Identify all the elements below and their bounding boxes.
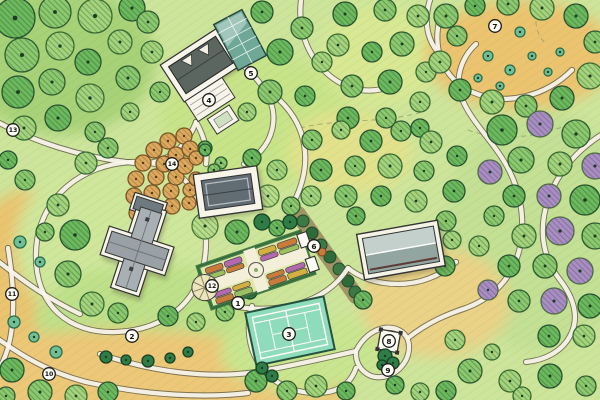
plan-marker-12[interactable]: 12 xyxy=(206,280,219,293)
tree xyxy=(85,122,105,142)
svg-circle-shape xyxy=(195,157,197,159)
orchard-tree xyxy=(146,142,162,158)
tree xyxy=(354,291,372,309)
plan-marker-14[interactable]: 14 xyxy=(166,158,179,171)
svg-circle-shape xyxy=(419,101,421,103)
svg-circle-shape xyxy=(271,375,273,377)
tree xyxy=(541,288,567,314)
svg-circle-shape xyxy=(589,305,592,308)
tree xyxy=(341,75,363,97)
svg-circle-shape xyxy=(345,195,348,198)
tree xyxy=(28,380,52,400)
tree xyxy=(533,254,557,278)
tree xyxy=(75,152,97,174)
tree xyxy=(362,42,382,62)
svg-circle-shape xyxy=(276,227,278,229)
svg-circle-shape xyxy=(19,241,21,243)
svg-circle-shape xyxy=(583,335,586,338)
svg-circle-shape xyxy=(39,261,41,263)
svg-circle-shape xyxy=(159,91,161,93)
tree xyxy=(332,121,350,139)
svg-circle-shape xyxy=(289,221,291,223)
tree xyxy=(46,32,74,60)
svg-circle-shape xyxy=(261,367,263,369)
svg-circle-shape xyxy=(491,351,493,353)
svg-circle-shape xyxy=(187,351,189,353)
plan-marker-label: 3 xyxy=(286,330,291,339)
svg-circle-shape xyxy=(189,189,191,191)
svg-circle-shape xyxy=(246,111,248,113)
svg-circle-shape xyxy=(297,215,309,227)
plan-marker-label: 5 xyxy=(248,69,253,78)
svg-circle-shape xyxy=(304,95,306,97)
tree xyxy=(573,325,595,347)
plan-marker-2[interactable]: 2 xyxy=(126,330,139,343)
tree xyxy=(378,154,402,178)
tree xyxy=(515,27,525,37)
svg-circle-shape xyxy=(394,384,396,386)
svg-circle-shape xyxy=(456,155,458,157)
tree xyxy=(513,387,531,400)
tree xyxy=(0,151,17,169)
svg-circle-shape xyxy=(7,159,9,161)
plan-marker-3[interactable]: 3 xyxy=(283,328,296,341)
tree xyxy=(335,185,357,207)
svg-circle-shape xyxy=(578,269,581,272)
svg-circle-shape xyxy=(552,299,555,302)
svg-circle-shape xyxy=(419,391,421,393)
plan-marker-label: 8 xyxy=(386,337,391,346)
svg-circle-shape xyxy=(518,300,521,303)
svg-circle-shape xyxy=(147,360,149,362)
svg-circle-shape xyxy=(380,195,382,197)
tree xyxy=(0,358,24,382)
tree xyxy=(305,375,327,397)
tree xyxy=(39,0,71,28)
tree xyxy=(14,236,26,248)
tree xyxy=(527,111,553,137)
svg-circle-shape xyxy=(423,170,425,172)
svg-circle-shape xyxy=(310,195,312,197)
tree xyxy=(508,147,534,173)
svg-circle-shape xyxy=(50,80,53,83)
svg-circle-shape xyxy=(575,15,578,18)
shrub xyxy=(183,347,193,357)
tree xyxy=(407,5,429,27)
plan-marker-6[interactable]: 6 xyxy=(308,240,321,253)
tree xyxy=(538,364,562,388)
svg-circle-shape xyxy=(315,385,318,388)
tree xyxy=(187,313,205,331)
svg-circle-shape xyxy=(340,129,342,131)
svg-circle-shape xyxy=(425,71,427,73)
tree xyxy=(478,280,498,300)
tree xyxy=(2,76,34,108)
svg-circle-shape xyxy=(135,178,137,180)
tree xyxy=(258,80,282,104)
svg-circle-shape xyxy=(33,336,35,338)
shrub xyxy=(121,355,131,365)
tree xyxy=(295,86,315,106)
svg-circle-shape xyxy=(354,165,356,167)
tree xyxy=(411,383,429,400)
tree xyxy=(410,92,430,112)
tree xyxy=(47,194,69,216)
svg-circle-shape xyxy=(392,362,394,364)
svg-circle-shape xyxy=(311,139,313,141)
svg-circle-shape xyxy=(487,55,489,57)
tree xyxy=(36,223,54,241)
svg-circle-shape xyxy=(509,380,512,383)
tree xyxy=(15,170,35,190)
svg-circle-shape xyxy=(117,312,119,314)
tree xyxy=(347,207,365,225)
svg-circle-shape xyxy=(11,369,14,372)
tree xyxy=(578,294,600,318)
plan-marker-10[interactable]: 10 xyxy=(43,368,56,381)
tree xyxy=(458,359,482,383)
tree xyxy=(443,231,461,249)
tree xyxy=(158,306,178,326)
shrub xyxy=(256,362,268,374)
svg-circle-shape xyxy=(491,101,494,104)
svg-circle-shape xyxy=(525,105,528,108)
tree xyxy=(225,220,249,244)
svg-circle-shape xyxy=(55,351,57,353)
svg-circle-shape xyxy=(220,162,222,164)
svg-circle-shape xyxy=(175,176,177,178)
svg-rect-shape xyxy=(395,350,400,355)
svg-circle-shape xyxy=(147,21,150,24)
svg-circle-shape xyxy=(583,198,587,202)
tree xyxy=(484,344,500,360)
svg-circle-shape xyxy=(105,356,107,358)
plan-marker-label: 2 xyxy=(129,332,134,341)
svg-circle-shape xyxy=(499,85,501,87)
tree xyxy=(378,70,402,94)
plan-marker-label: 13 xyxy=(9,127,18,134)
svg-circle-shape xyxy=(362,299,364,301)
svg-circle-shape xyxy=(371,51,373,53)
svg-circle-shape xyxy=(389,165,392,168)
tree xyxy=(267,160,287,180)
svg-rect-shape xyxy=(398,331,403,336)
tree xyxy=(436,381,456,400)
tree xyxy=(116,66,140,90)
tree xyxy=(386,376,404,394)
svg-circle-shape xyxy=(574,132,577,135)
svg-circle-shape xyxy=(487,289,489,291)
svg-circle-shape xyxy=(125,359,127,361)
svg-circle-shape xyxy=(320,169,323,172)
tree xyxy=(75,49,101,75)
svg-circle-shape xyxy=(13,16,18,21)
svg-circle-shape xyxy=(73,233,77,237)
tree xyxy=(390,32,414,56)
tree xyxy=(80,292,104,316)
plan-marker-11[interactable]: 11 xyxy=(6,288,19,301)
svg-circle-shape xyxy=(167,140,169,142)
svg-circle-shape xyxy=(385,117,387,119)
svg-circle-shape xyxy=(269,91,272,94)
svg-circle-shape xyxy=(213,169,215,171)
svg-circle-shape xyxy=(66,272,69,275)
plan-marker-5[interactable]: 5 xyxy=(245,67,258,80)
orchard-tree xyxy=(128,171,144,187)
svg-circle-shape xyxy=(561,97,564,100)
svg-circle-shape xyxy=(107,147,109,149)
tree xyxy=(150,82,170,102)
tree xyxy=(121,103,139,121)
tree xyxy=(484,206,504,226)
orchard-tree xyxy=(182,196,196,210)
shrub xyxy=(165,353,175,363)
plan-marker-7[interactable]: 7 xyxy=(489,20,502,33)
tree xyxy=(29,332,39,342)
svg-circle-shape xyxy=(384,9,387,12)
tree xyxy=(301,186,321,206)
shrub xyxy=(254,214,270,230)
svg-circle-shape xyxy=(351,85,354,88)
svg-circle-shape xyxy=(301,27,304,30)
tree xyxy=(108,30,132,54)
tree xyxy=(360,130,382,152)
svg-circle-shape xyxy=(548,335,551,338)
tree xyxy=(512,224,536,248)
svg-circle-shape xyxy=(13,321,15,323)
svg-circle-shape xyxy=(445,220,447,222)
svg-circle-shape xyxy=(370,140,373,143)
tree xyxy=(291,17,313,39)
svg-circle-shape xyxy=(44,231,46,233)
tree xyxy=(447,146,467,166)
svg-circle-shape xyxy=(400,130,402,132)
tree xyxy=(469,236,489,256)
svg-circle-shape xyxy=(16,90,20,94)
tree xyxy=(550,86,574,110)
tree xyxy=(141,41,163,63)
svg-circle-shape xyxy=(559,51,561,53)
shrub xyxy=(142,355,154,367)
svg-circle-shape xyxy=(419,127,421,129)
plan-marker-1[interactable]: 1 xyxy=(232,297,245,310)
tree xyxy=(449,79,471,101)
tree xyxy=(505,65,515,75)
tree xyxy=(548,152,572,176)
tree xyxy=(445,330,465,350)
tree xyxy=(434,4,458,28)
svg-circle-shape xyxy=(151,51,154,54)
svg-circle-shape xyxy=(20,53,24,57)
svg-circle-shape xyxy=(286,390,288,392)
svg-circle-shape xyxy=(53,10,57,14)
svg-circle-shape xyxy=(508,265,511,268)
orchard-tree xyxy=(160,133,176,149)
svg-circle-shape xyxy=(541,7,544,10)
tree xyxy=(60,220,90,250)
svg-circle-shape xyxy=(384,355,386,357)
svg-circle-shape xyxy=(430,141,433,144)
svg-circle-shape xyxy=(278,50,281,53)
svg-circle-shape xyxy=(509,69,511,71)
tree xyxy=(443,180,465,202)
svg-circle-shape xyxy=(5,395,7,397)
svg-circle-shape xyxy=(355,215,357,217)
svg-circle-shape xyxy=(142,162,144,164)
svg-circle-shape xyxy=(189,148,191,150)
svg-circle-shape xyxy=(549,375,552,378)
svg-circle-shape xyxy=(453,190,456,193)
tree xyxy=(327,34,349,56)
svg-circle-shape xyxy=(261,221,263,223)
svg-circle-shape xyxy=(261,11,264,14)
tree xyxy=(556,48,564,56)
tree xyxy=(98,138,118,158)
orchard-tree xyxy=(135,155,151,171)
svg-circle-shape xyxy=(344,13,347,16)
plan-marker-label: 1 xyxy=(235,299,240,308)
tree xyxy=(474,74,482,82)
site-plan-canvas: 1234567891011121314 xyxy=(0,0,600,400)
garden-house xyxy=(193,165,266,221)
plan-marker-8[interactable]: 8 xyxy=(383,335,396,348)
tree xyxy=(251,1,273,23)
svg-circle-shape xyxy=(153,149,155,151)
plan-marker-label: 14 xyxy=(168,161,177,168)
svg-circle-shape xyxy=(439,61,442,64)
tree xyxy=(544,68,552,76)
plan-marker-label: 10 xyxy=(45,371,54,378)
svg-circle-shape xyxy=(538,122,541,125)
svg-circle-shape xyxy=(585,385,587,387)
svg-circle-shape xyxy=(57,204,60,207)
svg-circle-shape xyxy=(267,195,270,198)
tree xyxy=(108,303,128,323)
shrub xyxy=(100,351,112,363)
tree xyxy=(238,103,256,121)
svg-circle-shape xyxy=(167,315,169,317)
tree xyxy=(282,197,300,215)
svg-circle-shape xyxy=(558,229,561,232)
svg-circle-shape xyxy=(477,77,479,79)
svg-circle-shape xyxy=(519,31,521,33)
plan-marker-4[interactable]: 4 xyxy=(203,94,216,107)
tree xyxy=(546,217,574,245)
svg-circle-shape xyxy=(523,235,526,238)
svg-circle-shape xyxy=(531,55,533,57)
svg-circle-shape xyxy=(184,165,186,167)
tree xyxy=(55,261,81,287)
svg-circle-shape xyxy=(513,195,516,198)
svg-circle-shape xyxy=(88,96,91,99)
svg-circle-shape xyxy=(169,357,171,359)
tree xyxy=(374,0,396,21)
tree xyxy=(243,149,261,167)
tree xyxy=(39,69,65,95)
svg-circle-shape xyxy=(91,303,94,306)
tree xyxy=(50,346,62,358)
tree xyxy=(570,185,600,215)
svg-circle-shape xyxy=(389,81,392,84)
tree xyxy=(577,63,600,89)
svg-circle-shape xyxy=(85,162,88,165)
tree xyxy=(498,255,520,277)
svg-circle-shape xyxy=(170,190,172,192)
tree xyxy=(302,130,322,150)
plan-marker-label: 4 xyxy=(206,96,211,105)
tree xyxy=(538,325,560,347)
tree xyxy=(537,184,561,208)
tree xyxy=(8,316,20,328)
tree xyxy=(567,258,593,284)
tree xyxy=(98,382,118,400)
tree xyxy=(420,131,442,153)
svg-circle-shape xyxy=(24,179,26,181)
tree xyxy=(267,39,293,65)
master-plan-drawing: 1234567891011121314 xyxy=(0,0,600,400)
svg-circle-shape xyxy=(417,15,420,18)
tree xyxy=(528,52,536,60)
svg-circle-shape xyxy=(459,89,462,92)
tree xyxy=(337,382,355,400)
svg-circle-shape xyxy=(151,192,153,194)
plan-marker-label: 11 xyxy=(8,291,17,298)
plan-marker-label: 12 xyxy=(208,283,217,290)
plan-marker-9[interactable]: 9 xyxy=(382,364,395,377)
tree xyxy=(0,0,35,38)
svg-circle-shape xyxy=(544,265,547,268)
svg-circle-shape xyxy=(559,163,562,166)
shrub xyxy=(283,215,297,229)
tree xyxy=(503,185,525,207)
svg-circle-shape xyxy=(507,3,510,6)
tree xyxy=(310,159,332,181)
svg-circle-shape xyxy=(548,195,551,198)
svg-circle-shape xyxy=(23,127,26,130)
svg-circle-shape xyxy=(521,395,523,397)
svg-circle-shape xyxy=(75,395,78,398)
tree xyxy=(35,257,45,267)
svg-circle-shape xyxy=(594,41,597,44)
tree xyxy=(496,82,504,90)
svg-circle-shape xyxy=(445,390,447,392)
tree xyxy=(562,120,590,148)
tree xyxy=(576,376,596,396)
svg-circle-shape xyxy=(474,5,476,7)
svg-circle-shape xyxy=(451,239,453,241)
svg-circle-shape xyxy=(255,380,258,383)
svg-circle-shape xyxy=(251,157,253,159)
svg-circle-shape xyxy=(188,202,190,204)
svg-circle-shape xyxy=(94,131,96,133)
tree xyxy=(465,0,485,16)
svg-circle-shape xyxy=(155,176,157,178)
plan-marker-13[interactable]: 13 xyxy=(7,124,20,137)
svg-circle-shape xyxy=(129,111,131,113)
tree xyxy=(391,121,411,141)
svg-circle-shape xyxy=(321,61,323,63)
svg-rect-shape xyxy=(375,347,380,352)
tree xyxy=(78,0,112,33)
svg-circle-shape xyxy=(345,390,347,392)
tree xyxy=(447,26,467,46)
tree xyxy=(277,381,297,400)
svg-circle-shape xyxy=(456,35,458,37)
svg-circle-shape xyxy=(489,171,492,174)
plan-marker-label: 7 xyxy=(492,22,497,31)
plan-marker-label: 9 xyxy=(385,366,390,375)
tree xyxy=(508,290,530,312)
